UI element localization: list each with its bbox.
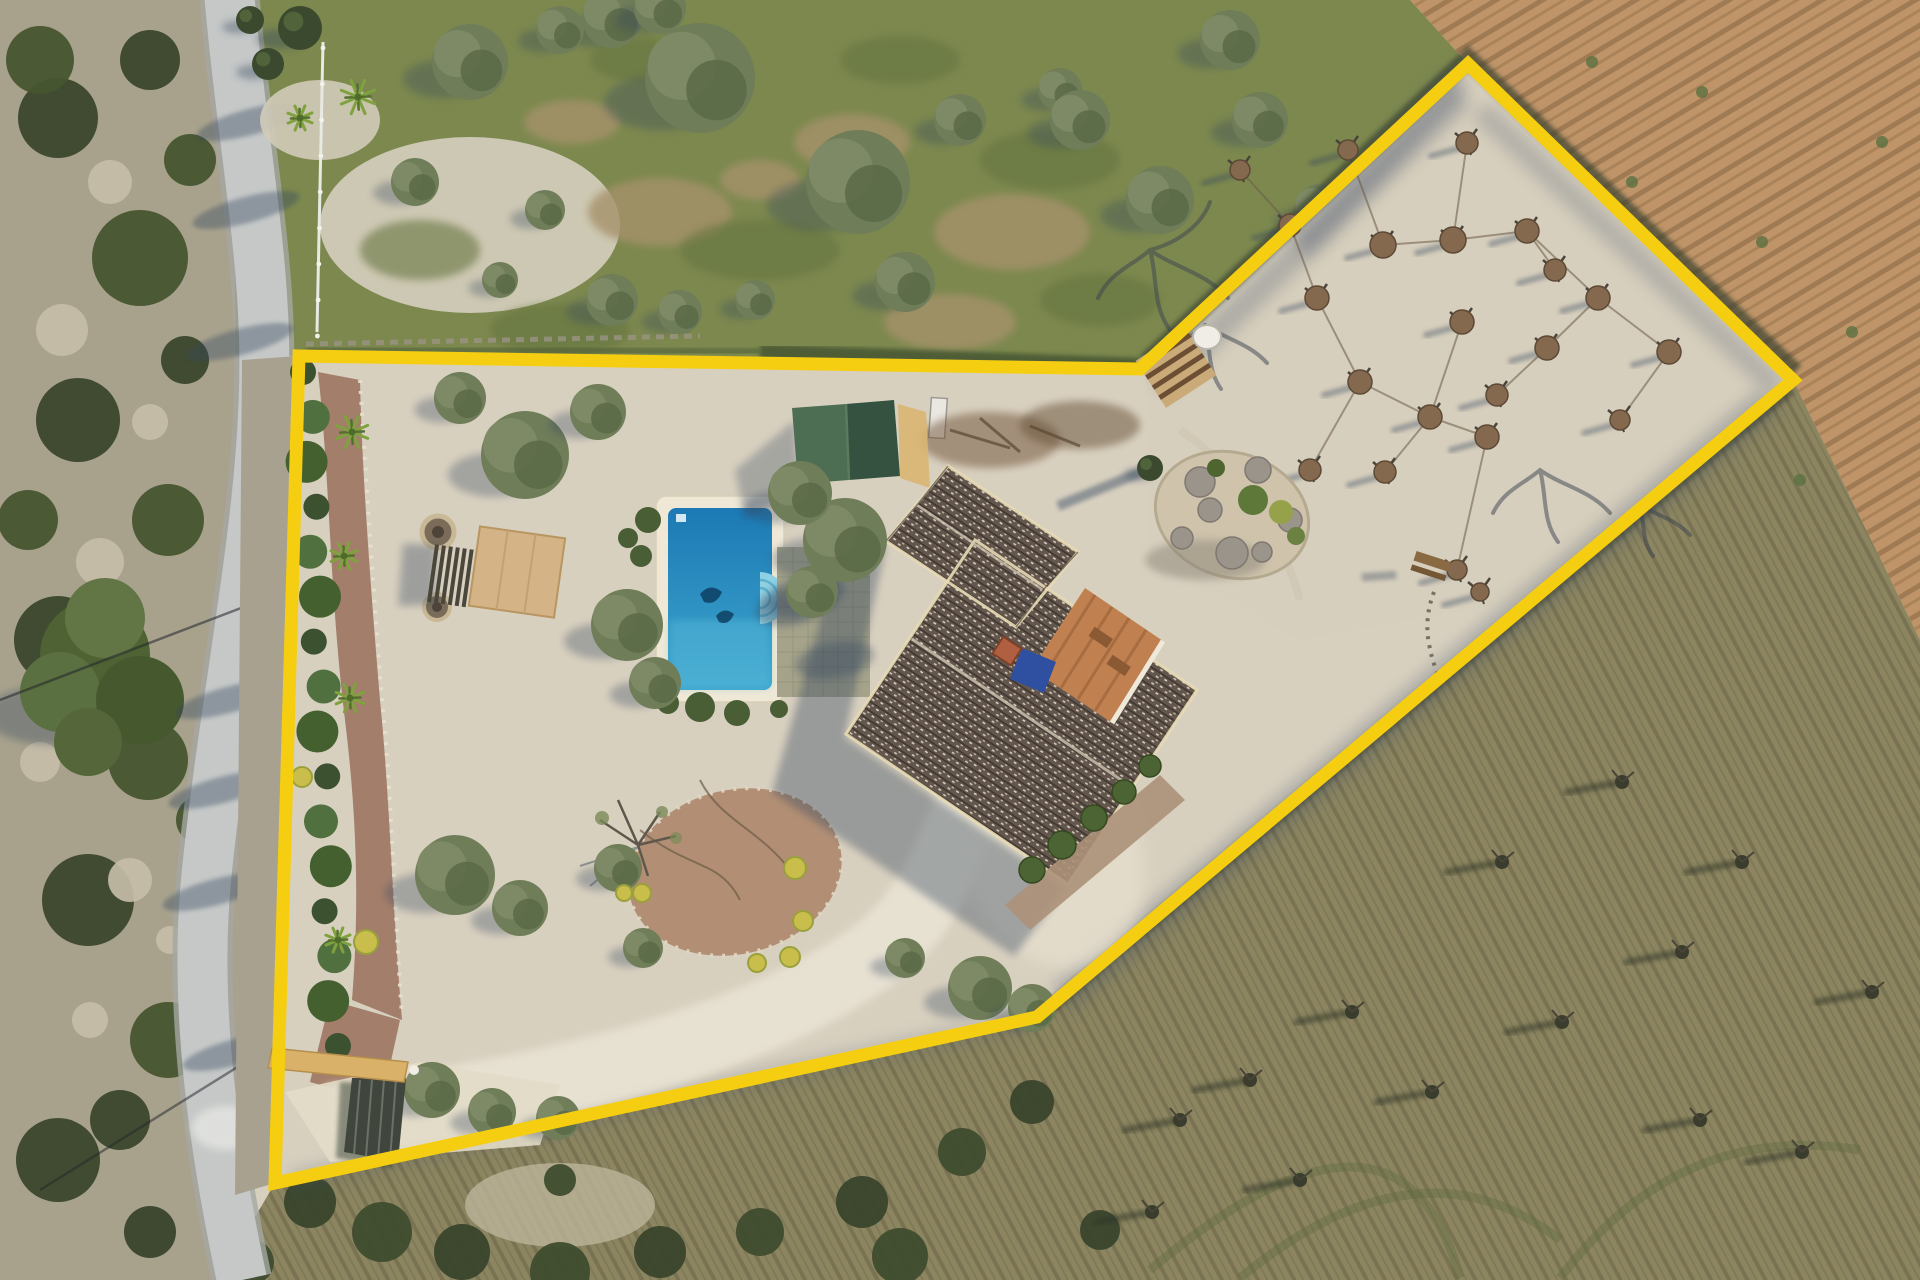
cypress-tree	[256, 52, 270, 66]
island-bush	[1207, 459, 1225, 477]
shrub	[1019, 857, 1045, 883]
orchard-tree-mound	[1610, 410, 1630, 430]
scrub-bush	[6, 26, 74, 94]
hedge-bush	[304, 804, 338, 838]
orchard-tree-mound	[1515, 219, 1539, 243]
scrub-bush	[36, 378, 120, 462]
rock	[1245, 457, 1271, 483]
olive-tree	[591, 403, 622, 434]
aerial-photo-stage	[0, 0, 1920, 1280]
scrub-bush	[434, 1224, 490, 1280]
scrub-bush	[1010, 1080, 1054, 1124]
scrub-bush	[0, 490, 58, 550]
rock	[1252, 542, 1272, 562]
palm-crown	[347, 695, 354, 702]
orchard-tree-mound	[1544, 259, 1566, 281]
shrub	[770, 700, 788, 718]
orchard-tree-mound	[1418, 405, 1442, 429]
rock	[1198, 498, 1222, 522]
olive-tree	[806, 583, 835, 612]
cypress-tree	[240, 10, 253, 23]
olive-tree	[900, 951, 922, 973]
scrub-bush	[836, 1176, 888, 1228]
rock-outcrop	[72, 1002, 108, 1038]
olive-tree	[898, 272, 931, 305]
fence-post	[317, 226, 322, 231]
orchard-tree-mound	[1450, 310, 1474, 334]
scrub-bush	[544, 1164, 576, 1196]
olive-tree	[425, 1081, 456, 1112]
shrub	[1048, 831, 1076, 859]
shrub	[1139, 755, 1161, 777]
rock-outcrop	[20, 742, 60, 782]
orchard-tree-mound	[1657, 340, 1681, 364]
orchard-tree-mound	[1535, 336, 1559, 360]
grass-patch	[1040, 274, 1160, 326]
olive-tree	[1223, 30, 1256, 63]
olive-tree	[954, 111, 983, 140]
olive-tree	[454, 389, 483, 418]
hedge-bush	[310, 845, 352, 887]
orchard-tree-mound	[1230, 160, 1250, 180]
olive-tree	[750, 293, 772, 315]
cypress-tree	[284, 12, 304, 32]
olive-tree	[540, 203, 562, 225]
dirt-patch	[934, 194, 1090, 270]
fence-post	[316, 298, 321, 303]
palm-crown	[355, 94, 362, 101]
scrub-bush	[120, 30, 180, 90]
orchard-tree-mound	[1305, 286, 1329, 310]
olive-tree	[638, 941, 660, 963]
shed-terrace	[898, 404, 930, 488]
yellow-bush	[784, 857, 806, 879]
gate-pillar	[409, 1065, 419, 1075]
rock-outcrop	[88, 160, 132, 204]
scrub-bush	[92, 210, 188, 306]
hedge-bush	[296, 710, 338, 752]
olive-tree	[649, 674, 678, 703]
hedge-bush	[301, 629, 327, 655]
fence-post	[319, 118, 324, 123]
orchard-tree-mound	[1338, 140, 1358, 160]
pine-tree	[54, 708, 122, 776]
scrub-bush	[352, 1202, 412, 1262]
weed-clump	[1876, 136, 1888, 148]
olive-tree	[972, 977, 1007, 1012]
scrub-bush	[124, 1206, 176, 1258]
scrub-bush	[164, 134, 216, 186]
fence-post	[319, 154, 324, 159]
orchard-tree-mound	[1374, 461, 1396, 483]
weed-clump	[1586, 56, 1598, 68]
island-bush	[1269, 500, 1293, 524]
hedge-bush	[303, 494, 329, 520]
olive-tree	[496, 274, 516, 294]
shrub	[1081, 805, 1107, 831]
olive-tree	[612, 860, 638, 886]
orchard-tree-mound	[1370, 232, 1396, 258]
olive-tree	[654, 0, 683, 28]
weed-clump	[1794, 474, 1806, 486]
shrub	[724, 700, 750, 726]
island-bush	[1287, 527, 1305, 545]
shrub	[685, 692, 715, 722]
orchard-tree-mound	[1586, 286, 1610, 310]
orchard-tree-mound	[1299, 459, 1321, 481]
fence-post	[320, 82, 325, 87]
olive-tree	[461, 49, 503, 91]
hedge-bush	[307, 980, 349, 1022]
olive-tree	[514, 440, 562, 488]
shrub	[1112, 780, 1136, 804]
olive-tree	[606, 291, 635, 320]
weed-clump	[1756, 236, 1768, 248]
shrub	[630, 545, 652, 567]
hedge-bush	[299, 576, 341, 618]
olive-tree	[686, 60, 747, 121]
palm-crown	[341, 553, 348, 560]
aerial-photo	[0, 0, 1920, 1280]
rock-outcrop	[108, 858, 152, 902]
yellow-bush	[354, 930, 378, 954]
orchard-tree-mound	[1475, 425, 1499, 449]
yellow-bush	[780, 947, 800, 967]
shrub	[635, 507, 661, 533]
shrub	[618, 528, 638, 548]
orchard-tree-mound	[1486, 384, 1508, 406]
satellite-dish	[1193, 325, 1221, 349]
rock	[1216, 537, 1248, 569]
rock-outcrop	[132, 404, 168, 440]
weed-clump	[1846, 326, 1858, 338]
palm-crown	[335, 937, 342, 944]
scrub-bush	[938, 1128, 986, 1176]
olive-tree	[675, 305, 699, 329]
hedge-bush	[314, 763, 340, 789]
fence-post	[315, 334, 320, 339]
yellow-bush	[793, 911, 813, 931]
pine-tree	[65, 578, 145, 658]
fence-post	[318, 190, 323, 195]
orchard-tree-mound	[1348, 370, 1372, 394]
palm-crown	[297, 115, 304, 122]
olive-tree	[554, 22, 580, 48]
fence-post	[321, 46, 326, 51]
hedge-bush	[307, 670, 341, 704]
hedge-bush	[312, 898, 338, 924]
olive-tree	[1152, 189, 1189, 226]
yellow-bush	[292, 767, 312, 787]
pool-skimmer	[676, 514, 686, 522]
olive-tree	[618, 613, 658, 653]
orchard-tree-mound	[1471, 583, 1489, 601]
fence-post	[316, 262, 321, 267]
rock-outcrop	[36, 304, 88, 356]
orchard-tree-mound	[1440, 227, 1466, 253]
olive-tree	[1253, 111, 1284, 142]
palm-crown	[349, 429, 356, 436]
olive-tree	[792, 482, 827, 517]
olive-tree	[1073, 110, 1106, 143]
weed-clump	[1696, 86, 1708, 98]
weed-clump	[1626, 176, 1638, 188]
island-bush	[1238, 485, 1268, 515]
cypress-tree	[1140, 458, 1152, 470]
yellow-bush	[748, 954, 766, 972]
orchard-tree-mound	[1456, 132, 1478, 154]
olive-tree	[445, 862, 489, 906]
grass-patch	[360, 220, 480, 280]
olive-tree	[513, 899, 544, 930]
grass-patch	[840, 36, 960, 84]
yellow-bush	[633, 884, 651, 902]
scrub-bush	[736, 1208, 784, 1256]
scrub-bush	[132, 484, 204, 556]
rock	[1171, 527, 1193, 549]
olive-tree	[835, 526, 881, 572]
olive-tree	[845, 165, 902, 222]
olive-tree	[409, 174, 435, 200]
yellow-bush	[616, 885, 632, 901]
scrub-bush	[634, 1226, 686, 1278]
